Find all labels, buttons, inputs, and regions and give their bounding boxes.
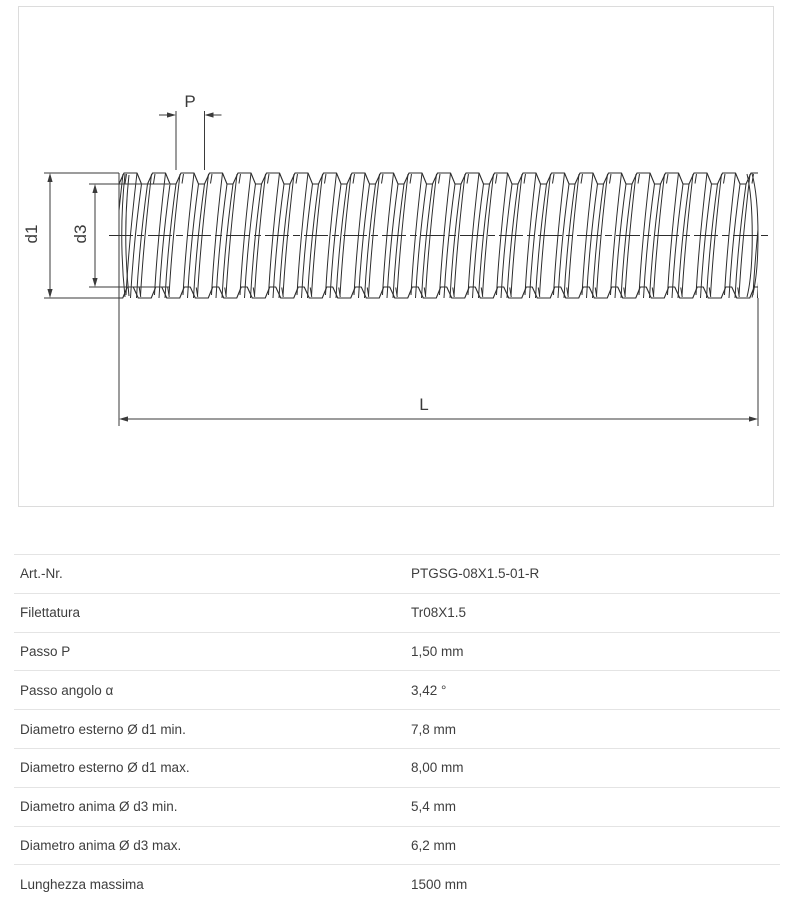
technical-drawing-panel: P d1 d3 L: [18, 6, 774, 507]
spec-value: 3,42 °: [411, 683, 780, 698]
spec-row: Passo angolo α3,42 °: [14, 670, 780, 709]
thread-geometry: [44, 111, 773, 426]
spec-label: Diametro esterno Ø d1 min.: [14, 722, 411, 737]
dim-label-length: L: [419, 395, 428, 414]
spec-row: Lunghezza massima1500 mm: [14, 864, 780, 903]
dim-label-pitch: P: [184, 92, 195, 111]
dim-label-outer-diameter: d1: [22, 225, 41, 244]
spec-value: 8,00 mm: [411, 760, 780, 775]
spec-label: Filettatura: [14, 605, 411, 620]
spec-label: Diametro anima Ø d3 max.: [14, 838, 411, 853]
spec-value: Tr08X1.5: [411, 605, 780, 620]
spec-label: Art.-Nr.: [14, 566, 411, 581]
dimension-arrow: [92, 278, 97, 287]
dimension-arrow: [119, 416, 128, 421]
spec-label: Lunghezza massima: [14, 877, 411, 892]
dim-label-core-diameter: d3: [71, 225, 90, 244]
spec-value: 1500 mm: [411, 877, 780, 892]
spec-row: Art.-Nr.PTGSG-08X1.5-01-R: [14, 554, 780, 593]
spec-label: Passo P: [14, 644, 411, 659]
dimension-arrow: [47, 173, 52, 182]
spec-value: 5,4 mm: [411, 799, 780, 814]
spec-row: Diametro anima Ø d3 min.5,4 mm: [14, 787, 780, 826]
dimension-arrow: [205, 112, 214, 117]
spec-row: Diametro esterno Ø d1 min.7,8 mm: [14, 709, 780, 748]
dimension-arrow: [749, 416, 758, 421]
spec-row: FilettaturaTr08X1.5: [14, 593, 780, 632]
product-spec-page: { "drawing": { "labels": { "pitch": "P",…: [0, 0, 796, 904]
spec-row: Diametro anima Ø d3 max.6,2 mm: [14, 826, 780, 865]
thread-drawing: P d1 d3 L: [19, 7, 773, 506]
spec-value: 1,50 mm: [411, 644, 780, 659]
dimension-arrow: [47, 289, 52, 298]
spec-label: Passo angolo α: [14, 683, 411, 698]
spec-label: Diametro esterno Ø d1 max.: [14, 760, 411, 775]
dimension-arrow: [167, 112, 176, 117]
spec-row: Passo P1,50 mm: [14, 632, 780, 671]
spec-table: Art.-Nr.PTGSG-08X1.5-01-RFilettaturaTr08…: [14, 554, 780, 903]
spec-value: PTGSG-08X1.5-01-R: [411, 566, 780, 581]
spec-value: 6,2 mm: [411, 838, 780, 853]
dimension-lines: [44, 111, 758, 426]
spec-label: Diametro anima Ø d3 min.: [14, 799, 411, 814]
spec-row: Diametro esterno Ø d1 max.8,00 mm: [14, 748, 780, 787]
dimension-arrow: [92, 184, 97, 193]
spec-value: 7,8 mm: [411, 722, 780, 737]
